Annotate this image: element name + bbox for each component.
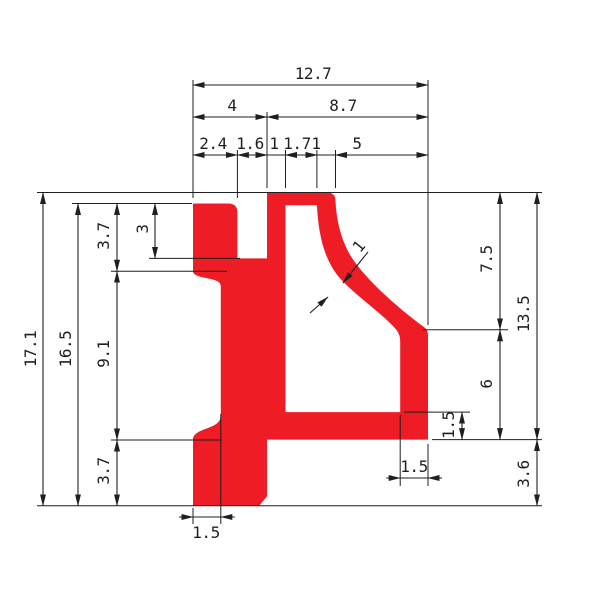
dim-label: 16.5 xyxy=(56,331,75,368)
profile-shape xyxy=(193,193,428,506)
dim-label: 1 xyxy=(349,237,369,256)
dim-label: 7.5 xyxy=(477,245,496,272)
dim-label: 4 xyxy=(227,96,236,115)
leader-line xyxy=(310,297,328,313)
technical-drawing: 12.748.72.41.611.7151.51.517.116.53.79.1… xyxy=(0,0,600,600)
dim-label: 13.5 xyxy=(514,296,533,333)
dim-label: 17.1 xyxy=(21,331,40,368)
dim-label: 8.7 xyxy=(329,96,356,115)
dim-label: 5 xyxy=(352,134,361,153)
dim-label: 2.4 xyxy=(199,134,226,153)
dim-label: 6 xyxy=(477,379,496,388)
dim-label: 1.5 xyxy=(400,457,427,476)
dim-label: 1.7 xyxy=(283,134,310,153)
dim-label: 1 xyxy=(311,134,320,153)
dim-label: 1.5 xyxy=(192,523,219,542)
dim-label: 1.5 xyxy=(439,411,458,438)
dim-label: 12.7 xyxy=(295,64,332,83)
dim-label: 3.7 xyxy=(94,457,113,484)
dim-label: 3.6 xyxy=(514,460,533,487)
drawing-canvas: 12.748.72.41.611.7151.51.517.116.53.79.1… xyxy=(0,0,600,600)
dim-label: 9.1 xyxy=(94,340,113,367)
dim-label: 3.7 xyxy=(94,222,113,249)
dim-label: 1.6 xyxy=(236,134,263,153)
dim-label: 1 xyxy=(269,134,278,153)
dim-label: 3 xyxy=(133,224,152,233)
